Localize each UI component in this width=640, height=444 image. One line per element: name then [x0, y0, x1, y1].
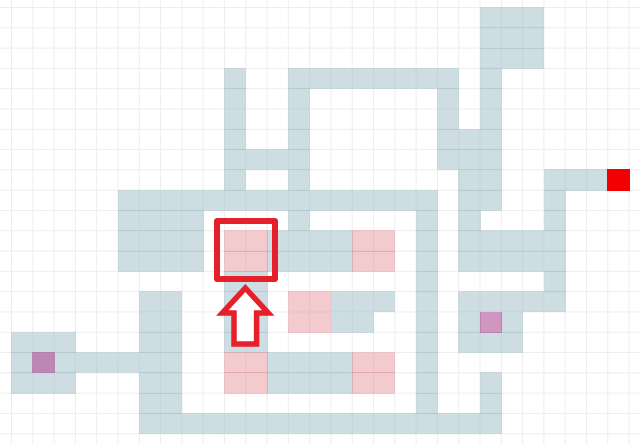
wall-cell-run — [11, 372, 76, 393]
wall-cell-run — [458, 312, 480, 333]
wall-cell-run — [288, 210, 310, 231]
wall-cell-run — [224, 149, 310, 170]
wall-cell-run — [501, 312, 523, 333]
wall-cell-run — [11, 332, 76, 353]
wall-cell-run — [458, 190, 502, 211]
wall-cell-run — [267, 372, 353, 393]
pink-marker-cell — [352, 372, 396, 393]
pink-marker-cell — [352, 251, 396, 272]
wall-cell-run — [118, 230, 204, 251]
wall-cell-run — [416, 352, 438, 373]
pink-marker-cell — [288, 291, 332, 312]
wall-cell-run — [544, 190, 566, 211]
wall-cell-run — [437, 109, 459, 130]
wall-cell-run — [458, 230, 566, 251]
wall-cell-run — [139, 291, 183, 312]
purple-marker-cell — [480, 312, 502, 333]
wall-cell-run — [224, 291, 268, 312]
wall-cell-run — [267, 230, 353, 251]
wall-cell-run — [139, 372, 183, 393]
wall-cell-run — [458, 169, 502, 190]
wall-cell-run — [139, 332, 183, 353]
wall-cell-run — [544, 271, 566, 292]
wall-cell-run — [416, 210, 438, 231]
wall-cell-run — [288, 68, 459, 89]
wall-cell-run — [480, 372, 502, 393]
wall-cell-run — [224, 332, 268, 353]
wall-cell-run — [416, 251, 438, 272]
wall-cell-run — [480, 109, 502, 130]
wall-cell-run — [480, 48, 545, 69]
wall-cell-run — [139, 413, 502, 434]
wall-cell-run — [267, 352, 353, 373]
wall-cell-run — [224, 129, 246, 150]
wall-cell-run — [224, 88, 246, 109]
wall-cell-run — [480, 68, 502, 89]
wall-cell-run — [118, 210, 204, 231]
goal-cell[interactable] — [607, 169, 629, 190]
wall-cell-run — [458, 291, 566, 312]
wall-cell-run — [416, 393, 438, 414]
wall-cell-run — [224, 312, 268, 333]
wall-cell-run — [118, 190, 439, 211]
wall-cell-run — [416, 312, 438, 333]
wall-cell-run — [288, 129, 310, 150]
wall-cell-run — [437, 149, 502, 170]
wall-cell-run — [224, 68, 246, 89]
wall-cell-run — [288, 88, 310, 109]
pink-marker-cell — [288, 312, 332, 333]
pink-marker-cell — [352, 230, 396, 251]
wall-cell-run — [224, 109, 246, 130]
wall-cell-run — [288, 169, 310, 190]
wall-cell-run — [437, 129, 502, 150]
wall-cell-run — [331, 312, 375, 333]
wall-cell-run — [224, 169, 246, 190]
maze-map — [0, 0, 640, 444]
wall-cell-run — [139, 312, 183, 333]
wall-cell-run — [480, 7, 545, 28]
wall-cell-run — [267, 251, 353, 272]
wall-cell-run — [544, 210, 566, 231]
highlight-box[interactable] — [214, 218, 278, 282]
wall-cell-run — [437, 88, 459, 109]
wall-cell-run — [458, 210, 480, 231]
pink-marker-cell — [224, 372, 268, 393]
wall-cell-run — [416, 271, 438, 292]
wall-cell-run — [416, 291, 438, 312]
wall-cell-run — [458, 332, 523, 353]
wall-cell-run — [416, 372, 438, 393]
wall-cell-run — [544, 169, 609, 190]
wall-cell-run — [458, 251, 566, 272]
wall-cell-run — [416, 332, 438, 353]
wall-cell-run — [331, 291, 396, 312]
wall-cell-run — [416, 230, 438, 251]
wall-cell-run — [480, 27, 545, 48]
pink-marker-cell — [352, 352, 396, 373]
wall-cell-run — [139, 393, 183, 414]
wall-cell-run — [288, 109, 310, 130]
wall-cell-run — [480, 393, 502, 414]
wall-cell-run — [118, 251, 204, 272]
wall-cell-run — [480, 88, 502, 109]
purple-marker-cell — [32, 352, 54, 373]
pink-marker-cell — [224, 352, 268, 373]
